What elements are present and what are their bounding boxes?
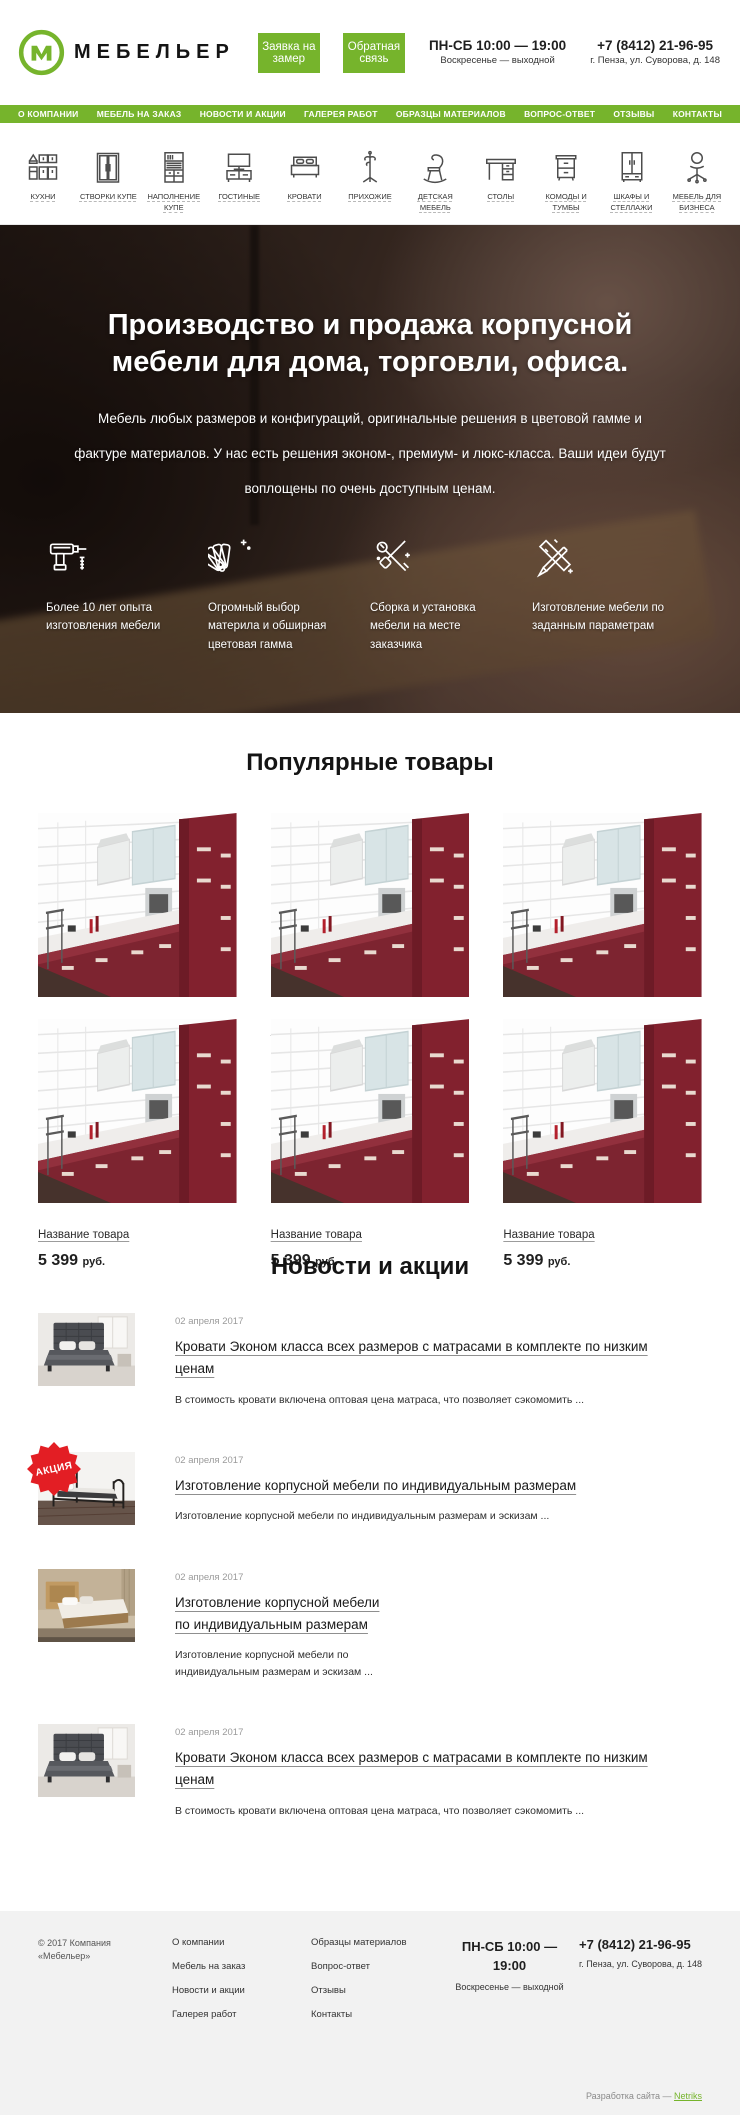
footer-link[interactable]: Галерея работ (172, 2009, 297, 2020)
footer-hours: ПН-СБ 10:00 — 19:00 Воскресенье — выходн… (442, 1937, 577, 2033)
category-item[interactable]: Гостиные (208, 149, 270, 214)
nav-link[interactable]: ГАЛЕРЕЯ РАБОТ (304, 109, 378, 119)
kitchen-icon (12, 149, 74, 185)
news-date: 02 апреля 2017 (175, 1724, 680, 1738)
news-title-link[interactable]: Изготовление корпусной мебели по индивид… (175, 1475, 576, 1497)
main-nav: О КОМПАНИИМЕБЕЛЬ НА ЗАКАЗНОВОСТИ И АКЦИИ… (0, 105, 740, 123)
category-label: Шкафы и стеллажи (601, 192, 663, 214)
cabinet-icon (601, 149, 663, 185)
footer-phone[interactable]: +7 (8412) 21-96-95 (579, 1937, 702, 1952)
category-label: Наполнение купе (143, 192, 205, 214)
category-item[interactable]: Наполнение купе (143, 149, 205, 214)
footer-address: г. Пенза, ул. Суворова, д. 148 (579, 1959, 702, 1969)
products-grid: Название товара 5 399 руб. Название това… (38, 813, 702, 1203)
hero-banner: Производство и продажа корпусной мебели … (0, 225, 740, 713)
product-card: Название товара 5 399 руб. (38, 1019, 237, 1203)
dresser-icon (535, 149, 597, 185)
category-label: Кровати (274, 192, 336, 203)
nav-link[interactable]: МЕБЕЛЬ НА ЗАКАЗ (97, 109, 182, 119)
working-hours: ПН-СБ 10:00 — 19:00 Воскресенье — выходн… (429, 37, 566, 68)
feature-item: Более 10 лет опыта изготовления мебели (46, 534, 208, 654)
footer-link[interactable]: Контакты (311, 2009, 436, 2020)
product-card: Название товара 5 399 руб. (271, 1019, 470, 1203)
category-item[interactable]: Комоды и тумбы (535, 149, 597, 214)
product-image[interactable] (38, 813, 237, 997)
site-header: МЕБЕЛЬЕР Заявка на замер Обратная связь … (0, 0, 740, 105)
footer-link[interactable]: Вопрос-ответ (311, 1961, 436, 1972)
news-date: 02 апреля 2017 (175, 1313, 680, 1327)
popular-products-section: Популярные товары Название товара 5 399 … (0, 713, 740, 1213)
desk-icon (470, 149, 532, 185)
news-image[interactable]: АКЦИЯ (38, 1724, 135, 1797)
product-name-link[interactable]: Название товара (38, 1229, 129, 1241)
products-section-title: Популярные товары (38, 749, 702, 777)
nav-link[interactable]: ОТЗЫВЫ (613, 109, 654, 119)
category-label: Кухни (12, 192, 74, 203)
category-label: Створки купе (77, 192, 139, 203)
category-item[interactable]: Кровати (274, 149, 336, 214)
category-item[interactable]: Мебель для бизнеса (666, 149, 728, 214)
living-room-icon (208, 149, 270, 185)
footer-hours-line2: 19:00 (493, 1958, 526, 1973)
category-label: Комоды и тумбы (535, 192, 597, 214)
nav-link[interactable]: О КОМПАНИИ (18, 109, 78, 119)
category-label: Гостиные (208, 192, 270, 203)
product-image[interactable] (271, 813, 470, 997)
product-card: Название товара 5 399 руб. (503, 813, 702, 997)
footer-link[interactable]: Мебель на заказ (172, 1961, 297, 1972)
price-currency: руб. (83, 1256, 106, 1268)
news-item: АКЦИЯ 02 апреля 2017 Кровати Эконом клас… (38, 1724, 702, 1819)
news-title-link[interactable]: Изготовление корпусной мебели по индивид… (175, 1592, 393, 1637)
category-label: Столы (470, 192, 532, 203)
footer-link[interactable]: Образцы материалов (311, 1937, 436, 1948)
feature-text: Более 10 лет опыта изготовления мебели (46, 599, 182, 636)
coat-rack-icon (339, 149, 401, 185)
category-item[interactable]: Створки купе (77, 149, 139, 214)
contact-info: +7 (8412) 21-96-95 г. Пенза, ул. Суворов… (590, 37, 720, 68)
news-title-link[interactable]: Кровати Эконом класса всех размеров с ма… (175, 1336, 680, 1381)
product-name-link[interactable]: Название товара (271, 1229, 362, 1241)
price-value: 5 399 (503, 1252, 543, 1269)
hero-features: Более 10 лет опыта изготовления мебели О… (0, 534, 740, 654)
wardrobe-filling-icon (143, 149, 205, 185)
price-value: 5 399 (38, 1252, 78, 1269)
news-excerpt: В стоимость кровати включена оптовая цен… (175, 1803, 680, 1819)
feature-text: Изготовление мебели по заданным параметр… (532, 599, 668, 636)
product-card: Название товара 5 399 руб. (503, 1019, 702, 1203)
feature-text: Огромный выбор материла и обширная цвето… (208, 599, 344, 654)
logo-icon (18, 29, 65, 76)
product-image[interactable] (503, 813, 702, 997)
news-date: 02 апреля 2017 (175, 1452, 576, 1466)
brand-name: МЕБЕЛЬЕР (74, 41, 235, 64)
category-bar: Кухни Створки купе Наполнение купе Гости… (0, 123, 740, 225)
feature-text: Сборка и установка мебели на месте заказ… (370, 599, 506, 654)
promo-badge-label: АКЦИЯ (22, 1437, 86, 1501)
address: г. Пенза, ул. Суворова, д. 148 (590, 55, 720, 68)
credits-prefix: Разработка сайта — (586, 2091, 674, 2101)
footer-hours-line1: ПН-СБ 10:00 — (462, 1939, 557, 1954)
price-currency: руб. (548, 1256, 571, 1268)
news-excerpt: Изготовление корпусной мебели по индивид… (175, 1647, 427, 1680)
category-item[interactable]: Шкафы и стеллажи (601, 149, 663, 214)
news-image[interactable]: АКЦИЯ (38, 1313, 135, 1386)
feature-item: Изготовление мебели по заданным параметр… (532, 534, 694, 654)
news-title-link[interactable]: Кровати Эконом класса всех размеров с ма… (175, 1747, 680, 1792)
product-card: Название товара 5 399 руб. (38, 813, 237, 997)
copyright: © 2017 Компания «Мебельер» (38, 1937, 158, 2033)
nav-link[interactable]: ВОПРОС-ОТВЕТ (524, 109, 595, 119)
footer-hours-sunday: Воскресенье — выходной (442, 1982, 577, 1992)
nav-link[interactable]: КОНТАКТЫ (673, 109, 722, 119)
site-footer: © 2017 Компания «Мебельер» О компанииМеб… (0, 1911, 740, 2115)
nav-link[interactable]: НОВОСТИ И АКЦИИ (200, 109, 286, 119)
news-item: АКЦИЯ 02 апреля 2017 Изготовление корпус… (38, 1452, 702, 1525)
product-name-link[interactable]: Название товара (503, 1229, 594, 1241)
feature-item: Огромный выбор материла и обширная цвето… (208, 534, 370, 654)
news-section: Новости и акции АКЦИЯ 02 апреля 2017 Кро… (0, 1213, 740, 1893)
hours-main: ПН-СБ 10:00 — 19:00 (429, 37, 566, 55)
swatches-icon (208, 534, 344, 579)
product-card: Название товара 5 399 руб. (271, 813, 470, 997)
drafting-icon (532, 534, 668, 579)
phone-number[interactable]: +7 (8412) 21-96-95 (590, 37, 720, 55)
news-excerpt: В стоимость кровати включена оптовая цен… (175, 1392, 680, 1408)
news-item: АКЦИЯ 02 апреля 2017 Изготовление корпус… (38, 1569, 702, 1680)
category-label: Прихожие (339, 192, 401, 203)
nav-link[interactable]: ОБРАЗЦЫ МАТЕРИАЛОВ (396, 109, 506, 119)
bed-icon (274, 149, 336, 185)
category-label: Детская мебель (404, 192, 466, 214)
footer-link[interactable]: Отзывы (311, 1985, 436, 1996)
product-image[interactable] (503, 1019, 702, 1203)
footer-links-col2: Образцы материаловВопрос-ответОтзывыКонт… (311, 1937, 436, 2033)
product-image[interactable] (271, 1019, 470, 1203)
kids-furniture-icon (404, 149, 466, 185)
news-list: АКЦИЯ 02 апреля 2017 Кровати Эконом клас… (38, 1313, 702, 1819)
footer-contacts: +7 (8412) 21-96-95 г. Пенза, ул. Суворов… (579, 1937, 702, 2033)
news-item: АКЦИЯ 02 апреля 2017 Кровати Эконом клас… (38, 1313, 702, 1408)
tools-icon (370, 534, 506, 579)
drill-icon (46, 534, 182, 579)
feedback-button[interactable]: Обратная связь (343, 33, 405, 73)
category-item[interactable]: Столы (470, 149, 532, 214)
hero-subtitle: Мебель любых размеров и конфигураций, ор… (70, 401, 670, 506)
hours-sunday: Воскресенье — выходной (429, 55, 566, 68)
footer-links-col1: О компанииМебель на заказНовости и акции… (172, 1937, 297, 2033)
product-image[interactable] (38, 1019, 237, 1203)
news-image[interactable]: АКЦИЯ (38, 1452, 135, 1525)
request-measure-button[interactable]: Заявка на замер (258, 33, 320, 73)
product-price: 5 399 руб. (503, 1252, 702, 1270)
footer-link[interactable]: О компании (172, 1937, 297, 1948)
hero-title: Производство и продажа корпусной мебели … (88, 307, 653, 381)
category-item[interactable]: Кухни (12, 149, 74, 214)
news-image[interactable]: АКЦИЯ (38, 1569, 135, 1642)
credits-link[interactable]: Netriks (674, 2091, 702, 2101)
sliding-doors-icon (77, 149, 139, 185)
news-date: 02 апреля 2017 (175, 1569, 427, 1583)
promo-badge: АКЦИЯ (27, 1442, 81, 1496)
feature-item: Сборка и установка мебели на месте заказ… (370, 534, 532, 654)
product-price: 5 399 руб. (38, 1252, 237, 1270)
category-item[interactable]: Прихожие (339, 149, 401, 214)
office-chair-icon (666, 149, 728, 185)
credits: Разработка сайта — Netriks (38, 2091, 702, 2101)
logo[interactable]: МЕБЕЛЬЕР (18, 29, 235, 76)
category-item[interactable]: Детская мебель (404, 149, 466, 214)
footer-link[interactable]: Новости и акции (172, 1985, 297, 1996)
news-excerpt: Изготовление корпусной мебели по индивид… (175, 1508, 576, 1524)
category-label: Мебель для бизнеса (666, 192, 728, 214)
